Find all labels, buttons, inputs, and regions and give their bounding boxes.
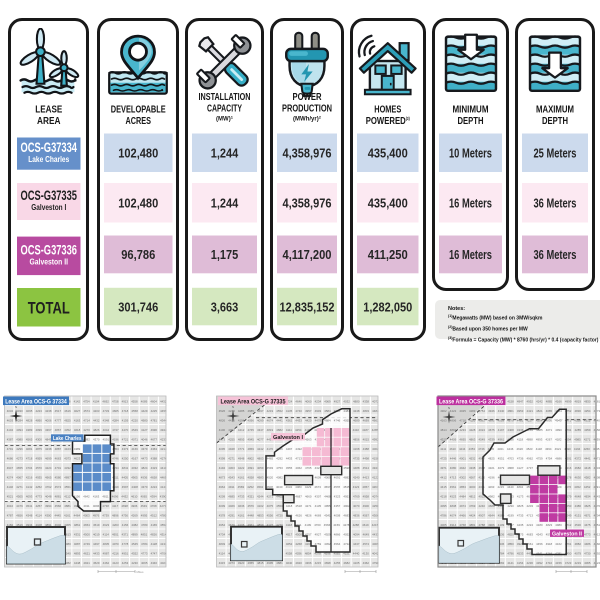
svg-text:1,244: 1,244	[211, 195, 239, 210]
svg-text:4399 4271 4948 4802 4803 4465: 4399 4271 4948 4802 4803 4465 4292 4433 …	[219, 456, 379, 460]
svg-text:10 Meters: 10 Meters	[449, 145, 492, 160]
svg-text:Galveston II: Galveston II	[552, 531, 582, 537]
svg-text:Lease Area OCS-G 37335: Lease Area OCS-G 37335	[221, 398, 286, 405]
svg-text:4,117,200: 4,117,200	[283, 247, 332, 262]
svg-text:4100 4062 4412 4745 4347 4819: 4100 4062 4412 4745 4347 4819 4882 4111 …	[219, 428, 379, 432]
svg-text:1,282,050: 1,282,050	[363, 299, 412, 314]
svg-text:4603 4284 4828 4890 4006 4777: 4603 4284 4828 4890 4006 4777 4825 4163 …	[7, 418, 167, 422]
svg-text:1,244: 1,244	[211, 145, 239, 160]
svg-text:Galveston II: Galveston II	[29, 256, 68, 266]
svg-text:4378 4291 4161 4448 4853 4556: 4378 4291 4161 4448 4853 4556 4720 4309 …	[219, 513, 379, 517]
svg-text:4315 4373 4920 4955 4815 4995: 4315 4373 4920 4955 4815 4995 4881 4040 …	[219, 561, 379, 565]
svg-text:411,250: 411,250	[368, 247, 408, 262]
svg-text:4009 4469 4636 4576 4102 4075: 4009 4469 4636 4576 4102 4075 4550 4218 …	[219, 504, 379, 508]
svg-text:301,746: 301,746	[118, 299, 158, 314]
svg-text:TOTAL: TOTAL	[27, 298, 69, 317]
svg-text:12,835,152: 12,835,152	[280, 299, 335, 314]
svg-text:4111 4610 4444 4353 4746 4805: 4111 4610 4444 4353 4746 4805 4321 4446 …	[440, 447, 600, 451]
svg-text:Lake Charles: Lake Charles	[28, 154, 69, 164]
svg-text:16 Meters: 16 Meters	[449, 195, 492, 210]
svg-text:Lake Charles: Lake Charles	[53, 436, 82, 442]
svg-text:4610 4479 4541 4257 4994 4566: 4610 4479 4541 4257 4994 4566 4881 4965 …	[7, 504, 167, 508]
svg-text:4104 4094 4389 4099 4367 4867: 4104 4094 4389 4099 4367 4867 4352 4618 …	[7, 428, 167, 432]
svg-text:4194 4303 4222 4991 4059 4593: 4194 4303 4222 4991 4059 4593 4753 4555 …	[219, 466, 379, 470]
svg-text:INSTALLATION: INSTALLATION	[199, 91, 251, 103]
svg-text:DEVELOPABLE: DEVELOPABLE	[110, 104, 165, 116]
svg-text:4387 4080 4565 4300 4849 4643: 4387 4080 4565 4300 4849 4643 4633 4906 …	[7, 437, 167, 441]
svg-text:4902 4422 4025 4183 4754 4946: 4902 4422 4025 4183 4754 4946 4340 4801 …	[440, 409, 600, 413]
svg-text:N: N	[232, 405, 234, 409]
svg-text:(MW)1: (MW)1	[216, 114, 234, 122]
svg-text:25 Meters: 25 Meters	[534, 145, 577, 160]
svg-text:ACRES: ACRES	[125, 115, 151, 127]
svg-text:Galveston I: Galveston I	[31, 202, 66, 212]
svg-text:4095 4838 4974 4769 4240 4688: 4095 4838 4974 4769 4240 4688 4317 4230 …	[440, 504, 600, 508]
svg-text:PRODUCTION: PRODUCTION	[282, 103, 332, 115]
svg-text:4095 4948 4771 4869 4242 4170: 4095 4948 4771 4869 4242 4170 4416 4497 …	[219, 447, 379, 451]
svg-text:4218 4523 4484 4812 4922 4982: 4218 4523 4484 4812 4922 4982 4815 4753 …	[440, 494, 600, 498]
svg-text:3,663: 3,663	[211, 299, 239, 314]
svg-text:4415 4561 4853 4000 4311 4293: 4415 4561 4853 4000 4311 4293 4215 4440 …	[440, 485, 600, 489]
svg-text:4526 4243 4285 4685 4497 4219: 4526 4243 4285 4685 4497 4219 4552 4135 …	[219, 409, 379, 413]
svg-text:4971 4680 4942 4338 4638 4321: 4971 4680 4942 4338 4638 4321 4679 4868 …	[440, 466, 600, 470]
svg-text:435,400: 435,400	[368, 145, 408, 160]
svg-text:N: N	[448, 406, 450, 410]
svg-text:POWERED(3): POWERED(3)	[366, 115, 410, 127]
svg-text:(MWh/yr)2: (MWh/yr)2	[293, 114, 322, 122]
svg-text:16 Meters: 16 Meters	[449, 247, 492, 262]
svg-text:Miles: Miles	[137, 570, 145, 574]
svg-text:4163 4806 4718 4110 4391 4893: 4163 4806 4718 4110 4391 4893 4039 4879 …	[440, 418, 600, 422]
svg-text:4786 4074 4466 4424 4907 4644: 4786 4074 4466 4424 4907 4644 4589 4199 …	[440, 513, 600, 517]
svg-text:4209 4685 4733 4321 4244 4271: 4209 4685 4733 4321 4244 4271 4405 4134 …	[219, 494, 379, 498]
svg-text:102,480: 102,480	[118, 145, 158, 160]
svg-text:N: N	[15, 405, 17, 409]
svg-text:Lease Area OCS-G 37334: Lease Area OCS-G 37334	[5, 398, 67, 405]
svg-text:AREA: AREA	[37, 115, 61, 127]
svg-text:MAXIMUM: MAXIMUM	[536, 104, 574, 116]
svg-text:DEPTH: DEPTH	[458, 115, 484, 127]
svg-text:4521 4505 4093 4773 4048 4881: 4521 4505 4093 4773 4048 4881 4112 4156 …	[7, 494, 167, 498]
svg-text:96,786: 96,786	[121, 247, 155, 262]
svg-text:4,358,976: 4,358,976	[283, 195, 332, 210]
svg-text:Lease Area OCS-G 37336: Lease Area OCS-G 37336	[439, 398, 503, 405]
svg-text:MINIMUM: MINIMUM	[453, 104, 489, 116]
svg-text:Galveston I: Galveston I	[273, 435, 303, 441]
svg-text:4787 4656 4348 4114 4300 4445: 4787 4656 4348 4114 4300 4445 4161 4464 …	[7, 513, 167, 517]
svg-text:36 Meters: 36 Meters	[534, 195, 577, 210]
svg-text:435,400: 435,400	[368, 195, 408, 210]
svg-text:1,175: 1,175	[211, 247, 239, 262]
svg-text:4725 4446 4001 4532 4947 4825: 4725 4446 4001 4532 4947 4825 4551 4703 …	[440, 456, 600, 460]
svg-text:102,480: 102,480	[118, 195, 158, 210]
svg-text:POWER: POWER	[293, 91, 322, 103]
svg-text:36 Meters: 36 Meters	[534, 247, 577, 262]
svg-text:4521 4409 4695 4863 4549 4339: 4521 4409 4695 4863 4549 4339 4961 4028 …	[440, 437, 600, 441]
svg-text:LEASE: LEASE	[35, 104, 62, 116]
svg-text:4005 4914 4768 4881 4788 4906: 4005 4914 4768 4881 4788 4906 4109 4797 …	[440, 523, 600, 527]
svg-text:CAPACITY: CAPACITY	[207, 103, 242, 115]
svg-text:DEPTH: DEPTH	[542, 115, 568, 127]
svg-text:4814 4892 4233 4228 4024 4675: 4814 4892 4233 4228 4024 4675 4197 4408 …	[440, 428, 600, 432]
svg-text:4826 4416 4194 4096 4099 4674: 4826 4416 4194 4096 4099 4674 4441 4362 …	[219, 418, 379, 422]
svg-text:HOMES: HOMES	[374, 104, 401, 116]
svg-text:4,358,976: 4,358,976	[283, 145, 332, 160]
svg-text:4032 4030 4095 4223 4238 4517: 4032 4030 4095 4223 4238 4517 4616 4027 …	[7, 409, 167, 413]
